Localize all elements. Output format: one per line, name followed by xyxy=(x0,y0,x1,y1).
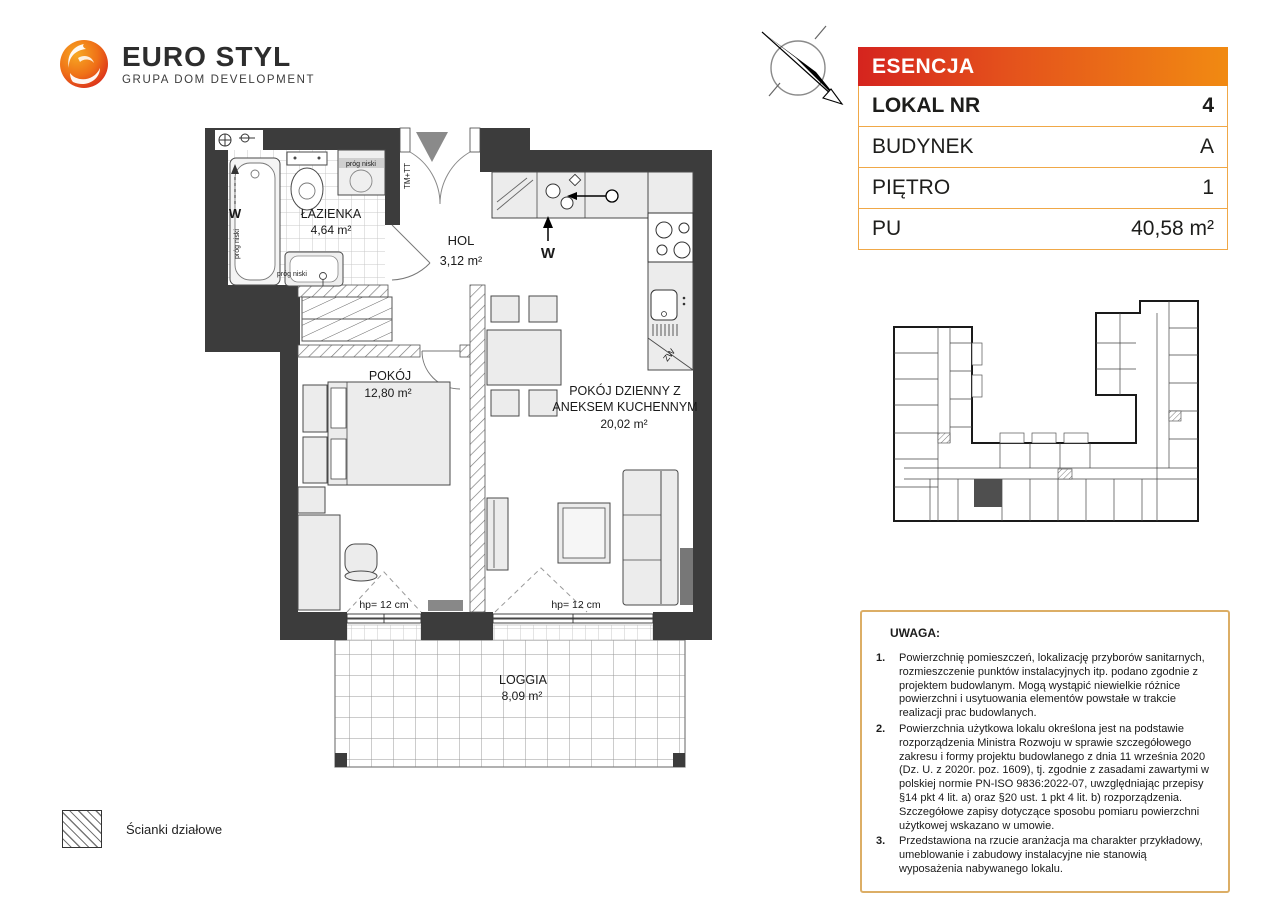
sofa xyxy=(623,470,678,605)
nightstand xyxy=(303,437,327,483)
building-balconies xyxy=(972,343,1088,443)
spec-value: 40,58 m² xyxy=(1131,217,1214,241)
nightstand xyxy=(303,385,327,432)
north-arrow-icon xyxy=(752,24,852,119)
spec-row-pu: PU 40,58 m² xyxy=(859,209,1227,249)
note-item: 3. Przedstawiona na rzucie aranżacja ma … xyxy=(876,835,1212,876)
room-area-pokoj: 12,80 m² xyxy=(364,386,411,400)
spec-label: BUDYNEK xyxy=(872,135,974,159)
kitchen-counter-top xyxy=(492,172,648,218)
floorplan-sheet: { "logo": {"brand": "EURO STYL", "taglin… xyxy=(0,0,1273,900)
note-number: 3. xyxy=(876,835,891,876)
room-area-dzienny: 20,02 m² xyxy=(600,417,647,431)
prog-niski-top: próg niski xyxy=(346,161,376,168)
vent-bath-label: W xyxy=(229,206,242,221)
spec-row-pietro: PIĘTRO 1 xyxy=(859,168,1227,209)
spec-label: PIĘTRO xyxy=(872,176,950,200)
spec-row-lokal: LOKAL NR 4 xyxy=(859,86,1227,127)
spec-label: PU xyxy=(872,217,901,241)
tm-tt-annotation: TM+TT xyxy=(403,163,412,189)
brand-name: EURO STYL xyxy=(122,42,315,72)
spec-value: 4 xyxy=(1202,94,1214,118)
building-outline xyxy=(894,301,1198,521)
dining-set xyxy=(487,296,561,416)
room-label-loggia: LOGGIA xyxy=(499,673,548,687)
legend: Ścianki działowe xyxy=(62,810,222,848)
radiator xyxy=(428,600,463,611)
project-name-header: ESENCJA xyxy=(858,47,1228,86)
room-label-dzienny-1: POKÓJ DZIENNY Z xyxy=(569,383,681,398)
logo: EURO STYL GRUPA DOM DEVELOPMENT xyxy=(58,38,315,90)
room-label-pokoj: POKÓJ xyxy=(369,368,411,383)
tv-cabinet xyxy=(487,498,508,570)
prog-niski-side: próg niski xyxy=(234,229,241,259)
legend-label: Ścianki działowe xyxy=(126,822,222,837)
spec-value: A xyxy=(1200,135,1214,159)
hall-wardrobe xyxy=(302,297,392,341)
note-item: 1. Powierzchnię pomieszczeń, lokalizację… xyxy=(876,652,1212,721)
vent-kitchen-label: W xyxy=(541,245,556,262)
radiator xyxy=(680,548,693,605)
partition-wall-swatch xyxy=(62,810,102,848)
stove xyxy=(648,213,693,262)
notes-title: UWAGA: xyxy=(890,626,1212,640)
note-text: Powierzchnię pomieszczeń, lokalizację pr… xyxy=(891,652,1212,721)
room-label-dzienny-2: ANEKSEM KUCHENNYM xyxy=(552,400,697,414)
hp-annotation-left: hp= 12 cm xyxy=(359,599,409,611)
entrance-marker xyxy=(416,132,448,162)
bathroom-sink xyxy=(285,252,343,286)
window-right xyxy=(493,614,653,623)
logo-flame-icon xyxy=(58,38,110,90)
bathtub xyxy=(230,158,280,285)
unit-spec-panel: ESENCJA LOKAL NR 4 BUDYNEK A PIĘTRO 1 PU… xyxy=(858,47,1228,250)
building-overview-plan xyxy=(880,283,1220,544)
desk-chair xyxy=(345,544,377,581)
room-area-lazienka: 4,64 m² xyxy=(311,223,352,237)
bedroom-wardrobe xyxy=(298,515,340,610)
note-number: 1. xyxy=(876,652,891,721)
note-text: Powierzchnia użytkowa lokalu określona j… xyxy=(891,723,1212,833)
note-text: Przedstawiona na rzucie aranżacja ma cha… xyxy=(891,835,1212,876)
brand-tagline: GRUPA DOM DEVELOPMENT xyxy=(122,74,315,86)
note-item: 2. Powierzchnia użytkowa lokalu określon… xyxy=(876,723,1212,833)
window-left xyxy=(347,614,421,623)
kitchen-counter-right xyxy=(648,172,693,370)
spec-table: LOKAL NR 4 BUDYNEK A PIĘTRO 1 PU 40,58 m… xyxy=(858,86,1228,250)
hp-annotation-right: hp= 12 cm xyxy=(551,599,601,611)
floor-plan: ŁAZIENKA 4,64 m² HOL 3,12 m² POKÓJ 12,80… xyxy=(195,108,795,778)
note-number: 2. xyxy=(876,723,891,833)
spec-label: LOKAL NR xyxy=(872,94,980,118)
room-area-loggia: 8,09 m² xyxy=(502,689,543,703)
spec-value: 1 xyxy=(1202,176,1214,200)
spec-row-budynek: BUDYNEK A xyxy=(859,127,1227,168)
fridge-symbol xyxy=(606,190,618,202)
prog-niski-bottom: próg niski xyxy=(277,271,307,278)
coffee-table xyxy=(558,503,610,563)
room-label-lazienka: ŁAZIENKA xyxy=(301,207,362,221)
notes-box: UWAGA: 1. Powierzchnię pomieszczeń, loka… xyxy=(860,610,1230,893)
loggia-tile-floor xyxy=(335,640,685,767)
washing-machine xyxy=(338,150,385,195)
highlighted-unit xyxy=(974,479,1002,507)
room-label-hol: HOL xyxy=(448,233,475,248)
room-area-hol: 3,12 m² xyxy=(440,254,482,268)
